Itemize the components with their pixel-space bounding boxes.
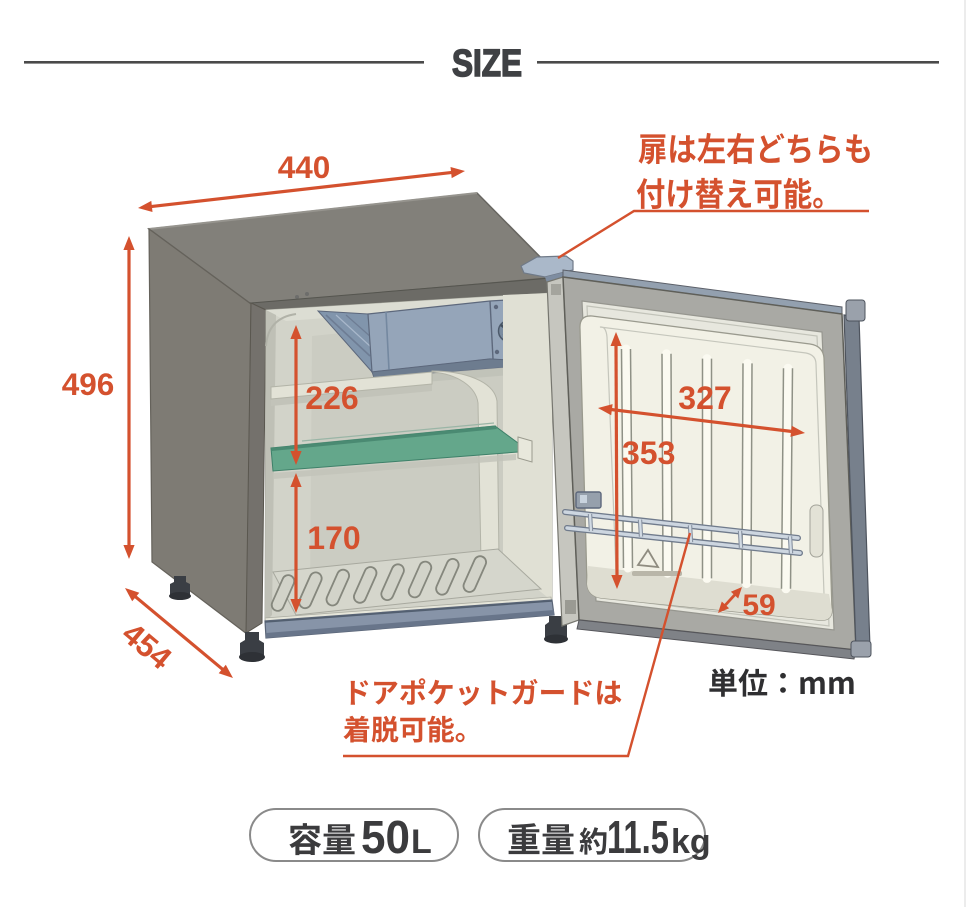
svg-text:353: 353 xyxy=(622,435,675,471)
svg-text:226: 226 xyxy=(305,380,358,416)
svg-text:50: 50 xyxy=(361,811,410,863)
svg-text:kg: kg xyxy=(671,823,711,861)
svg-text:L: L xyxy=(411,823,432,861)
svg-text:11.5: 11.5 xyxy=(607,811,669,863)
svg-text:440: 440 xyxy=(278,149,331,185)
svg-text:327: 327 xyxy=(678,380,731,416)
svg-text:59: 59 xyxy=(742,589,775,622)
svg-text:170: 170 xyxy=(307,520,360,556)
svg-text:496: 496 xyxy=(62,366,115,402)
svg-text:SIZE: SIZE xyxy=(452,43,522,85)
